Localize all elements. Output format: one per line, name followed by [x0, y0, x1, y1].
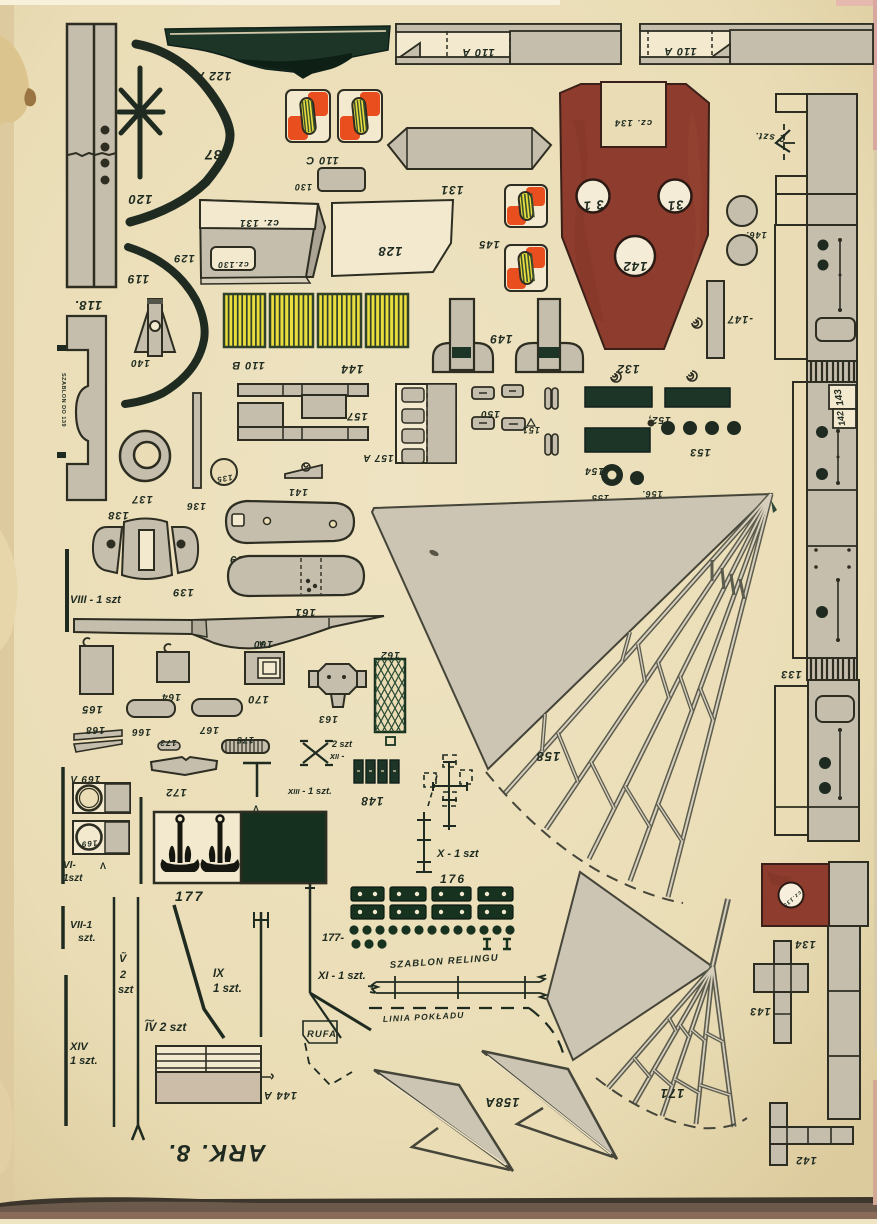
svg-text:VIII - 1 szt: VIII - 1 szt	[70, 594, 122, 606]
svg-text:176: 176	[440, 872, 466, 886]
svg-text:1 szt.: 1 szt.	[213, 983, 242, 995]
svg-text:cz. 134: cz. 134	[614, 117, 652, 128]
svg-text:143: 143	[749, 1005, 770, 1017]
svg-text:141: 141	[288, 486, 308, 497]
svg-text:131: 131	[440, 183, 463, 197]
svg-text:110 A: 110 A	[461, 46, 494, 58]
svg-text:119: 119	[127, 272, 149, 286]
svg-text:162: 162	[380, 649, 400, 660]
svg-text:31: 31	[667, 197, 685, 213]
svg-text:129: 129	[173, 252, 194, 264]
svg-text:-147: -147	[727, 313, 753, 325]
svg-text:139: 139	[172, 586, 193, 598]
svg-text:2: 2	[119, 969, 126, 981]
svg-text:146.: 146.	[745, 230, 767, 240]
svg-text:153: 153	[689, 446, 710, 458]
svg-text:144: 144	[340, 362, 363, 376]
svg-text:158: 158	[536, 749, 561, 764]
svg-text:177-: 177-	[322, 932, 344, 944]
svg-text:138: 138	[107, 509, 128, 521]
svg-text:140: 140	[130, 357, 150, 368]
svg-text:cz. 131: cz. 131	[239, 217, 279, 228]
svg-text:133: 133	[780, 668, 801, 680]
svg-text:V: V	[259, 640, 265, 649]
svg-text:157 A: 157 A	[362, 452, 393, 463]
svg-text:137: 137	[131, 493, 152, 505]
svg-text:110 A: 110 A	[663, 45, 696, 57]
svg-text:128: 128	[378, 244, 403, 259]
svg-text:XIV: XIV	[69, 1041, 89, 1053]
svg-text:VI-: VI-	[63, 860, 76, 871]
svg-text:149: 149	[489, 332, 512, 346]
svg-text:Λ: Λ	[100, 861, 106, 871]
svg-text:171: 171	[660, 1086, 685, 1101]
svg-text:cz.130: cz.130	[217, 260, 249, 270]
svg-text:ARK. 8.: ARK. 8.	[166, 1139, 266, 1166]
svg-text:166: 166	[131, 726, 151, 737]
svg-text:1szt: 1szt	[63, 873, 83, 884]
svg-text:RUFA: RUFA	[307, 1029, 337, 1040]
svg-text:173: 173	[159, 738, 176, 748]
svg-text:136: 136	[186, 500, 206, 511]
svg-text:VII-1: VII-1	[70, 919, 92, 931]
svg-text:169: 169	[81, 838, 98, 848]
svg-text:I͠V 2 szt: I͠V 2 szt	[144, 1019, 187, 1034]
svg-text:150: 150	[480, 408, 500, 419]
svg-text:158A: 158A	[484, 1095, 519, 1110]
svg-text:163: 163	[318, 713, 338, 724]
svg-text:142: 142	[795, 1154, 816, 1166]
svg-text:szt: szt	[118, 984, 135, 996]
svg-text:118.: 118.	[74, 298, 102, 313]
svg-text:xIII - 1 szt.: xIII - 1 szt.	[287, 786, 332, 797]
svg-text:170: 170	[247, 693, 268, 705]
svg-text:szt.: szt.	[78, 932, 96, 944]
svg-text:110 C: 110 C	[305, 154, 339, 166]
svg-text:X - 1 szt: X - 1 szt	[436, 848, 480, 860]
svg-text:87: 87	[204, 147, 222, 163]
svg-text:SZABLON DO 139: SZABLON DO 139	[60, 373, 66, 427]
svg-text:110 B: 110 B	[231, 359, 265, 371]
svg-text:165: 165	[81, 703, 102, 715]
svg-text:177: 177	[175, 888, 204, 904]
svg-text:2 szt: 2 szt	[331, 739, 353, 749]
svg-text:130: 130	[294, 182, 312, 192]
svg-text:148: 148	[360, 794, 383, 808]
svg-text:157: 157	[346, 410, 367, 422]
svg-text:142: 142	[623, 259, 648, 274]
svg-text:145: 145	[478, 238, 499, 250]
svg-text:1 szt.: 1 szt.	[70, 1055, 98, 1067]
svg-text:167: 167	[199, 724, 219, 735]
svg-text:IX: IX	[213, 968, 225, 980]
svg-text:168: 168	[85, 724, 105, 735]
svg-text:XI - 1 szt.: XI - 1 szt.	[317, 970, 366, 982]
svg-text:3 1: 3 1	[582, 197, 604, 214]
svg-text:134: 134	[794, 938, 815, 950]
svg-text:120: 120	[128, 192, 153, 207]
svg-text:144 A: 144 A	[263, 1089, 297, 1101]
svg-text:172: 172	[165, 786, 186, 798]
svg-text:175: 175	[236, 735, 254, 745]
svg-text:122 A: 122 A	[195, 69, 232, 83]
